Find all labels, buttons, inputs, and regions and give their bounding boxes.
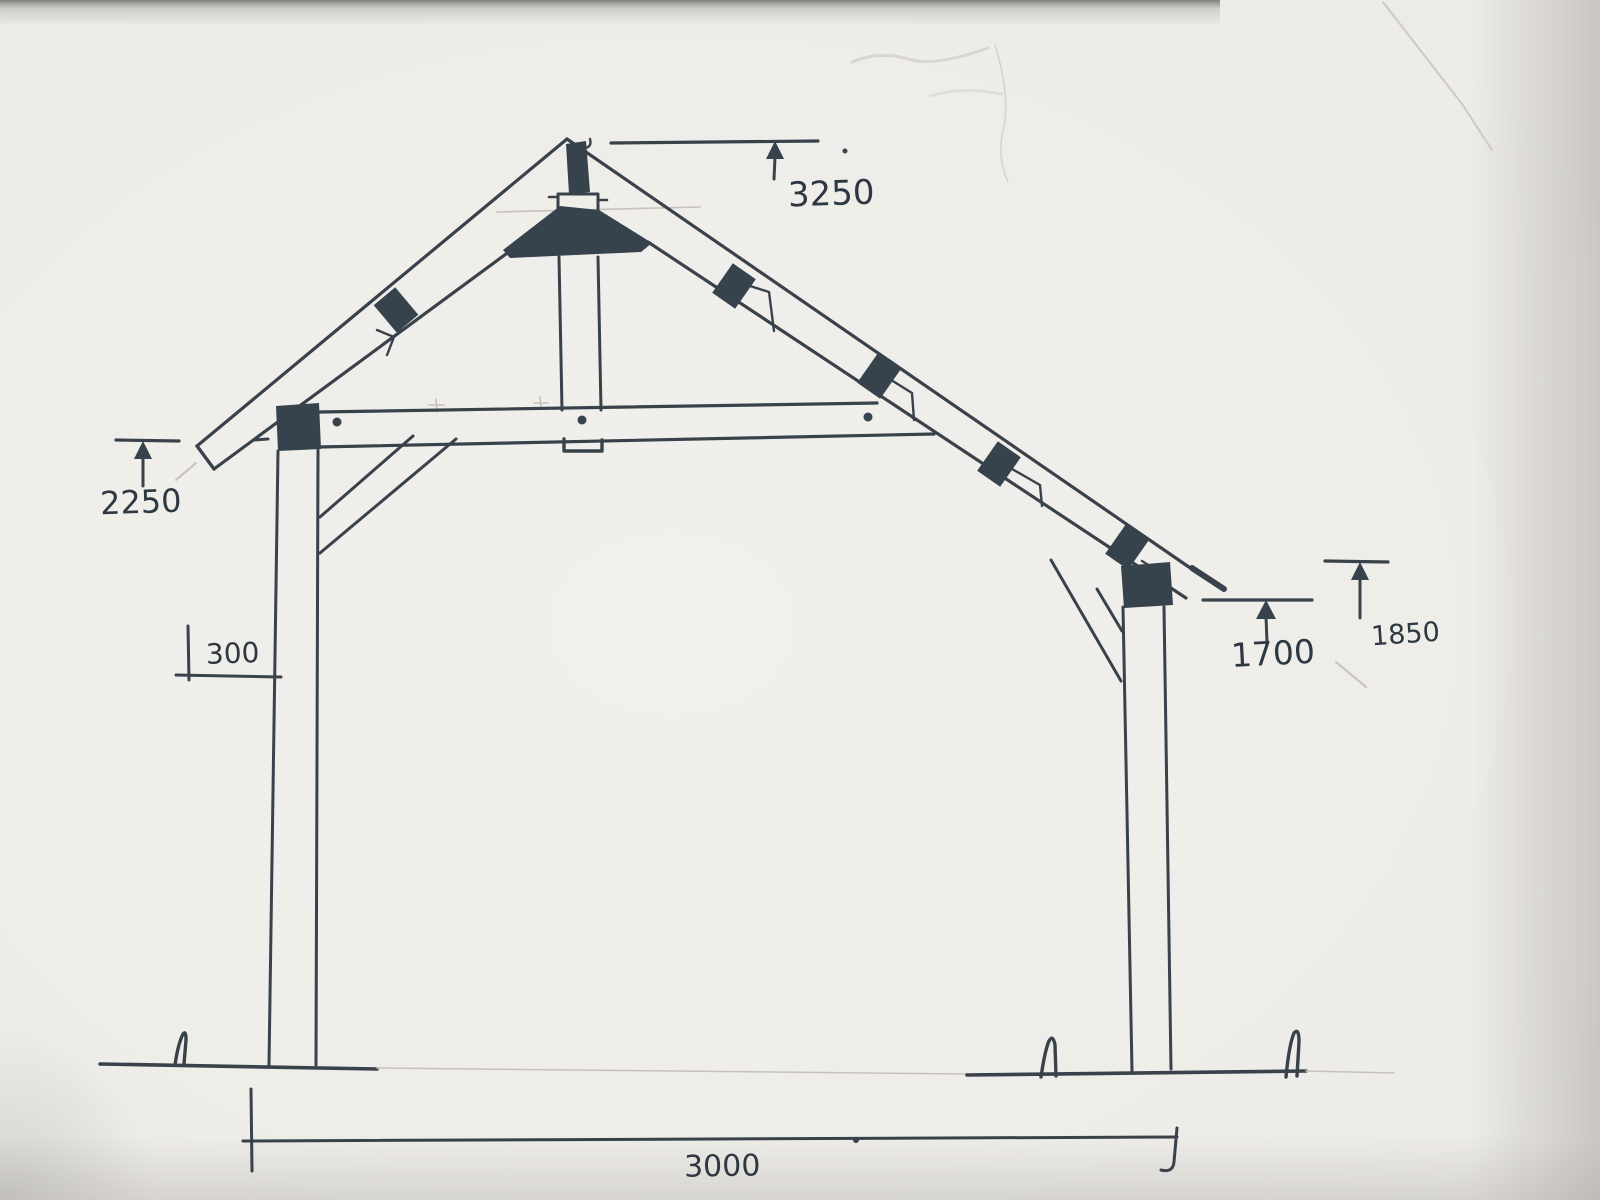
dim-left-wall-line: [116, 440, 179, 441]
dim-left-wall-label: 2250: [99, 482, 182, 523]
left-post-right-edge: [316, 450, 318, 1065]
dim-overhang-line: [176, 675, 281, 677]
tie-beam-bolt-right: [864, 413, 873, 422]
dim-ridge-height-label: 3250: [787, 172, 875, 215]
ink-dot: [843, 149, 848, 154]
paper-right-edge-shade: [1470, 0, 1600, 1200]
paper-top-edge-shade: [0, 0, 1220, 26]
right-post-joint-block: [1121, 562, 1173, 608]
dim-ridge-height-arrow-stem: [774, 157, 775, 179]
ink-dot: [853, 1137, 859, 1143]
dim-span-label: 3000: [684, 1148, 761, 1184]
dim-right-wall-label: 1850: [1370, 617, 1441, 653]
left-joint-tick: [254, 439, 268, 440]
dim-right-wall-line: [1325, 561, 1388, 562]
photographed-sketch-page: 3250 2250 300 1700 1850: [0, 0, 1600, 1200]
apex-finial: [566, 141, 590, 194]
dim-overhang-tick: [188, 626, 189, 680]
paper-corner-shade: [0, 700, 420, 1200]
dim-ridge-height-line: [611, 141, 818, 143]
truss-drawing-canvas: 3250 2250 300 1700 1850: [0, 0, 1600, 1200]
tie-beam-bolt-center: [578, 416, 587, 425]
dim-overhang-label: 300: [205, 636, 260, 671]
tie-beam-bolt-left: [333, 418, 342, 427]
left-post-joint-block: [276, 403, 321, 451]
dim-span-left-tick: [251, 1089, 252, 1171]
dim-right-post-label: 1700: [1230, 632, 1316, 675]
